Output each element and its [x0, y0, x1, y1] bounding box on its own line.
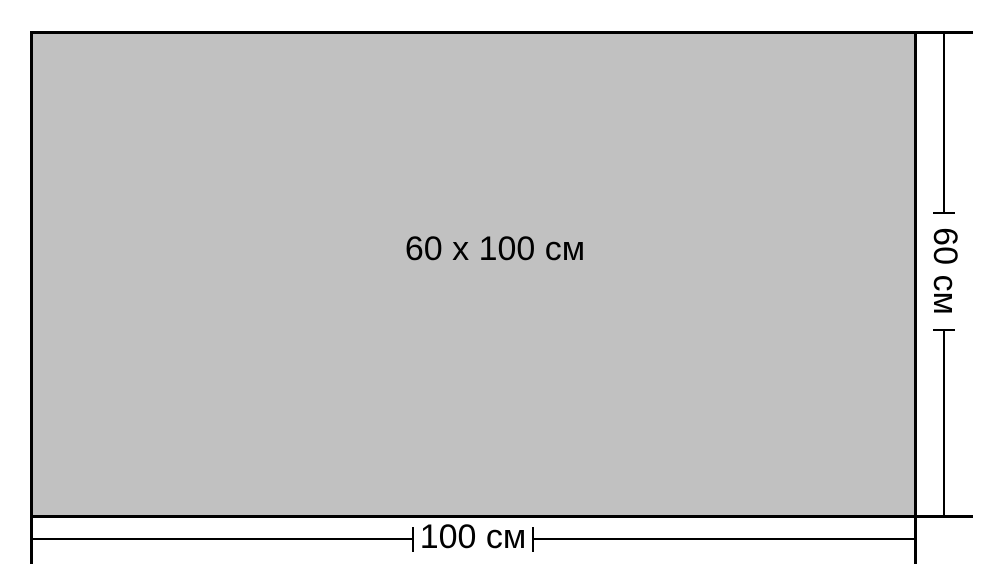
panel-rectangle: [30, 31, 917, 518]
width-dimension-label: 100 см: [420, 519, 527, 555]
height-dimension-label: 60 см: [927, 227, 963, 315]
dimension-diagram: 60 x 100 см 60 см 100 см: [0, 0, 1000, 582]
width-dimension-line-left: [31, 538, 412, 540]
width-extension-line-left: [30, 517, 33, 564]
height-dimension-tick-upper: [933, 212, 955, 214]
height-dimension-line-lower: [943, 331, 945, 517]
panel-size-label: 60 x 100 см: [0, 231, 990, 267]
height-dimension-line-upper: [943, 33, 945, 213]
width-dimension-tick-left: [412, 527, 414, 552]
width-extension-line-right: [914, 517, 917, 564]
width-dimension-line-right: [534, 538, 916, 540]
